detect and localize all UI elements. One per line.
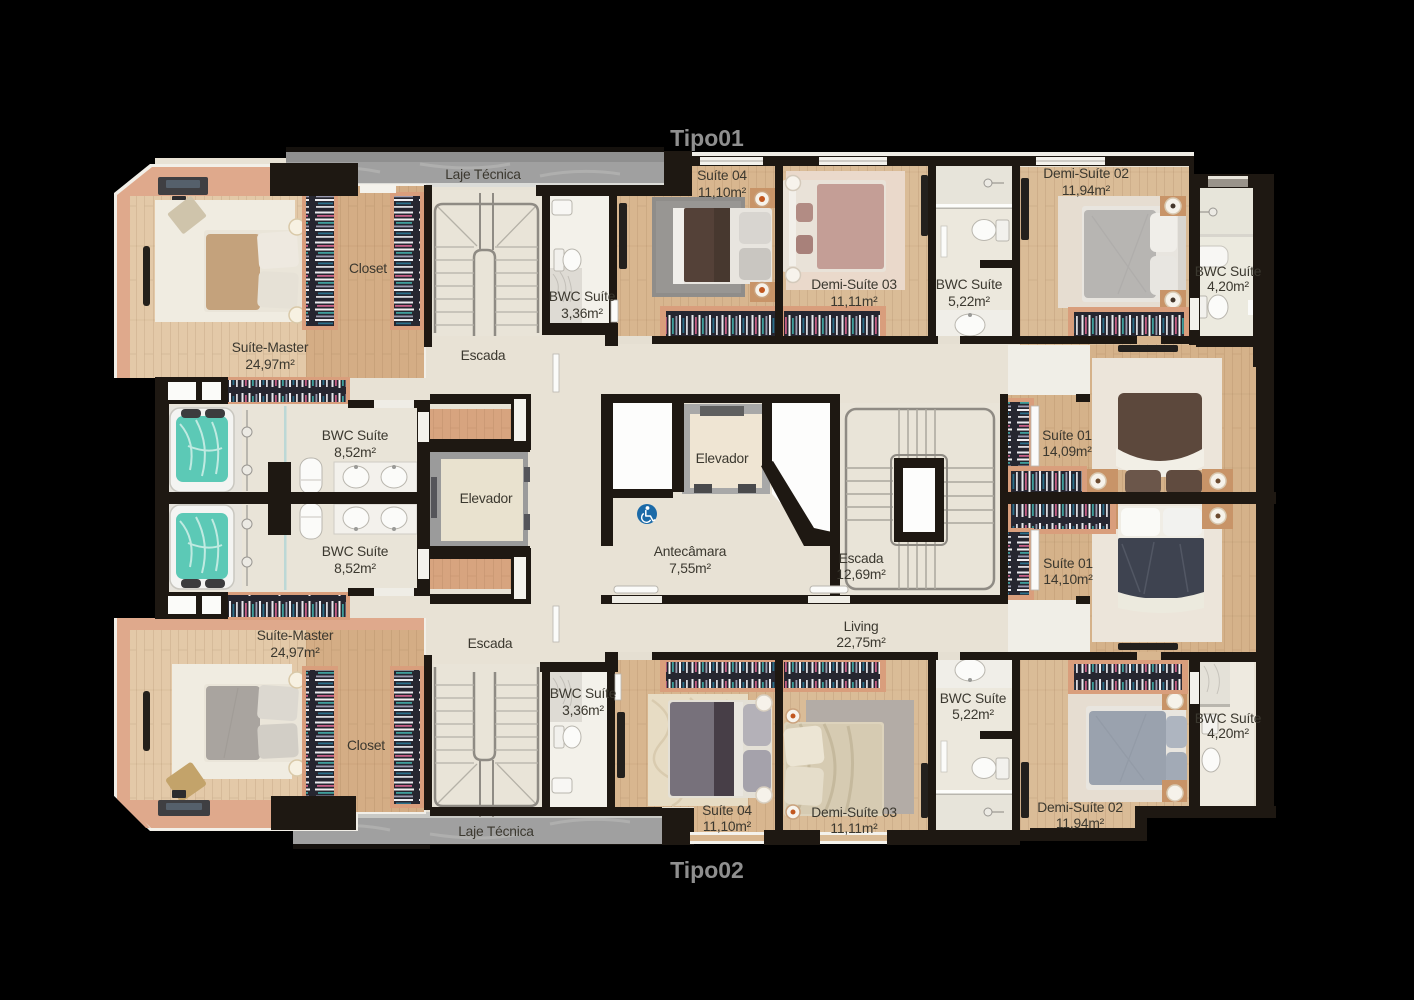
svg-text:11,94m²: 11,94m² [1056, 816, 1105, 831]
svg-text:Closet: Closet [349, 261, 387, 276]
svg-text:BWC Suíte: BWC Suíte [936, 277, 1003, 292]
svg-text:Suíte 04: Suíte 04 [702, 803, 752, 818]
svg-text:Suíte 01: Suíte 01 [1043, 556, 1093, 571]
svg-text:Suíte-Master: Suíte-Master [257, 628, 334, 643]
svg-text:11,11m²: 11,11m² [830, 294, 878, 309]
svg-text:3,36m²: 3,36m² [561, 306, 603, 321]
svg-text:5,22m²: 5,22m² [948, 294, 990, 309]
svg-text:11,94m²: 11,94m² [1062, 183, 1111, 198]
svg-text:BWC Suíte: BWC Suíte [550, 686, 617, 701]
svg-text:Elevador: Elevador [460, 491, 513, 506]
svg-text:5,22m²: 5,22m² [952, 707, 994, 722]
svg-text:3,36m²: 3,36m² [562, 703, 604, 718]
svg-text:14,09m²: 14,09m² [1042, 444, 1092, 459]
svg-text:7,55m²: 7,55m² [669, 561, 711, 576]
svg-text:Demi-Suíte 02: Demi-Suíte 02 [1037, 800, 1123, 815]
svg-text:11,10m²: 11,10m² [698, 185, 747, 200]
svg-text:4,20m²: 4,20m² [1207, 279, 1249, 294]
svg-text:Suíte 01: Suíte 01 [1042, 428, 1092, 443]
svg-text:Closet: Closet [347, 738, 385, 753]
svg-text:Laje Técnica: Laje Técnica [445, 167, 521, 182]
svg-text:BWC Suíte: BWC Suíte [1195, 264, 1262, 279]
svg-text:Suíte-Master: Suíte-Master [232, 340, 309, 355]
svg-text:Tipo02: Tipo02 [670, 857, 744, 883]
svg-text:Demi-Suíte 03: Demi-Suíte 03 [811, 277, 897, 292]
svg-text:Tipo01: Tipo01 [670, 125, 744, 151]
svg-text:Elevador: Elevador [696, 451, 749, 466]
svg-text:Antecâmara: Antecâmara [654, 544, 727, 559]
svg-text:24,97m²: 24,97m² [245, 357, 295, 372]
svg-text:Escada: Escada [468, 636, 513, 651]
svg-text:22,75m²: 22,75m² [836, 635, 886, 650]
svg-text:Escada: Escada [839, 551, 884, 566]
svg-text:8,52m²: 8,52m² [334, 445, 376, 460]
svg-text:BWC Suíte: BWC Suíte [322, 428, 389, 443]
svg-text:BWC Suíte: BWC Suíte [940, 691, 1007, 706]
svg-text:Living: Living [844, 619, 879, 634]
svg-text:8,52m²: 8,52m² [334, 561, 376, 576]
svg-text:BWC Suíte: BWC Suíte [1195, 711, 1262, 726]
svg-text:Demi-Suíte 02: Demi-Suíte 02 [1043, 166, 1129, 181]
svg-text:14,10m²: 14,10m² [1043, 572, 1093, 587]
svg-text:BWC Suíte: BWC Suíte [322, 544, 389, 559]
svg-text:24,97m²: 24,97m² [270, 645, 320, 660]
svg-text:BWC Suíte: BWC Suíte [549, 289, 616, 304]
svg-text:Laje Técnica: Laje Técnica [458, 824, 534, 839]
svg-text:11,11m²: 11,11m² [830, 821, 878, 836]
svg-text:11,10m²: 11,10m² [703, 819, 752, 834]
svg-text:12,69m²: 12,69m² [836, 567, 886, 582]
svg-text:Escada: Escada [461, 348, 506, 363]
svg-text:Suíte 04: Suíte 04 [697, 168, 747, 183]
svg-text:4,20m²: 4,20m² [1207, 726, 1249, 741]
svg-text:Demi-Suíte 03: Demi-Suíte 03 [811, 805, 897, 820]
